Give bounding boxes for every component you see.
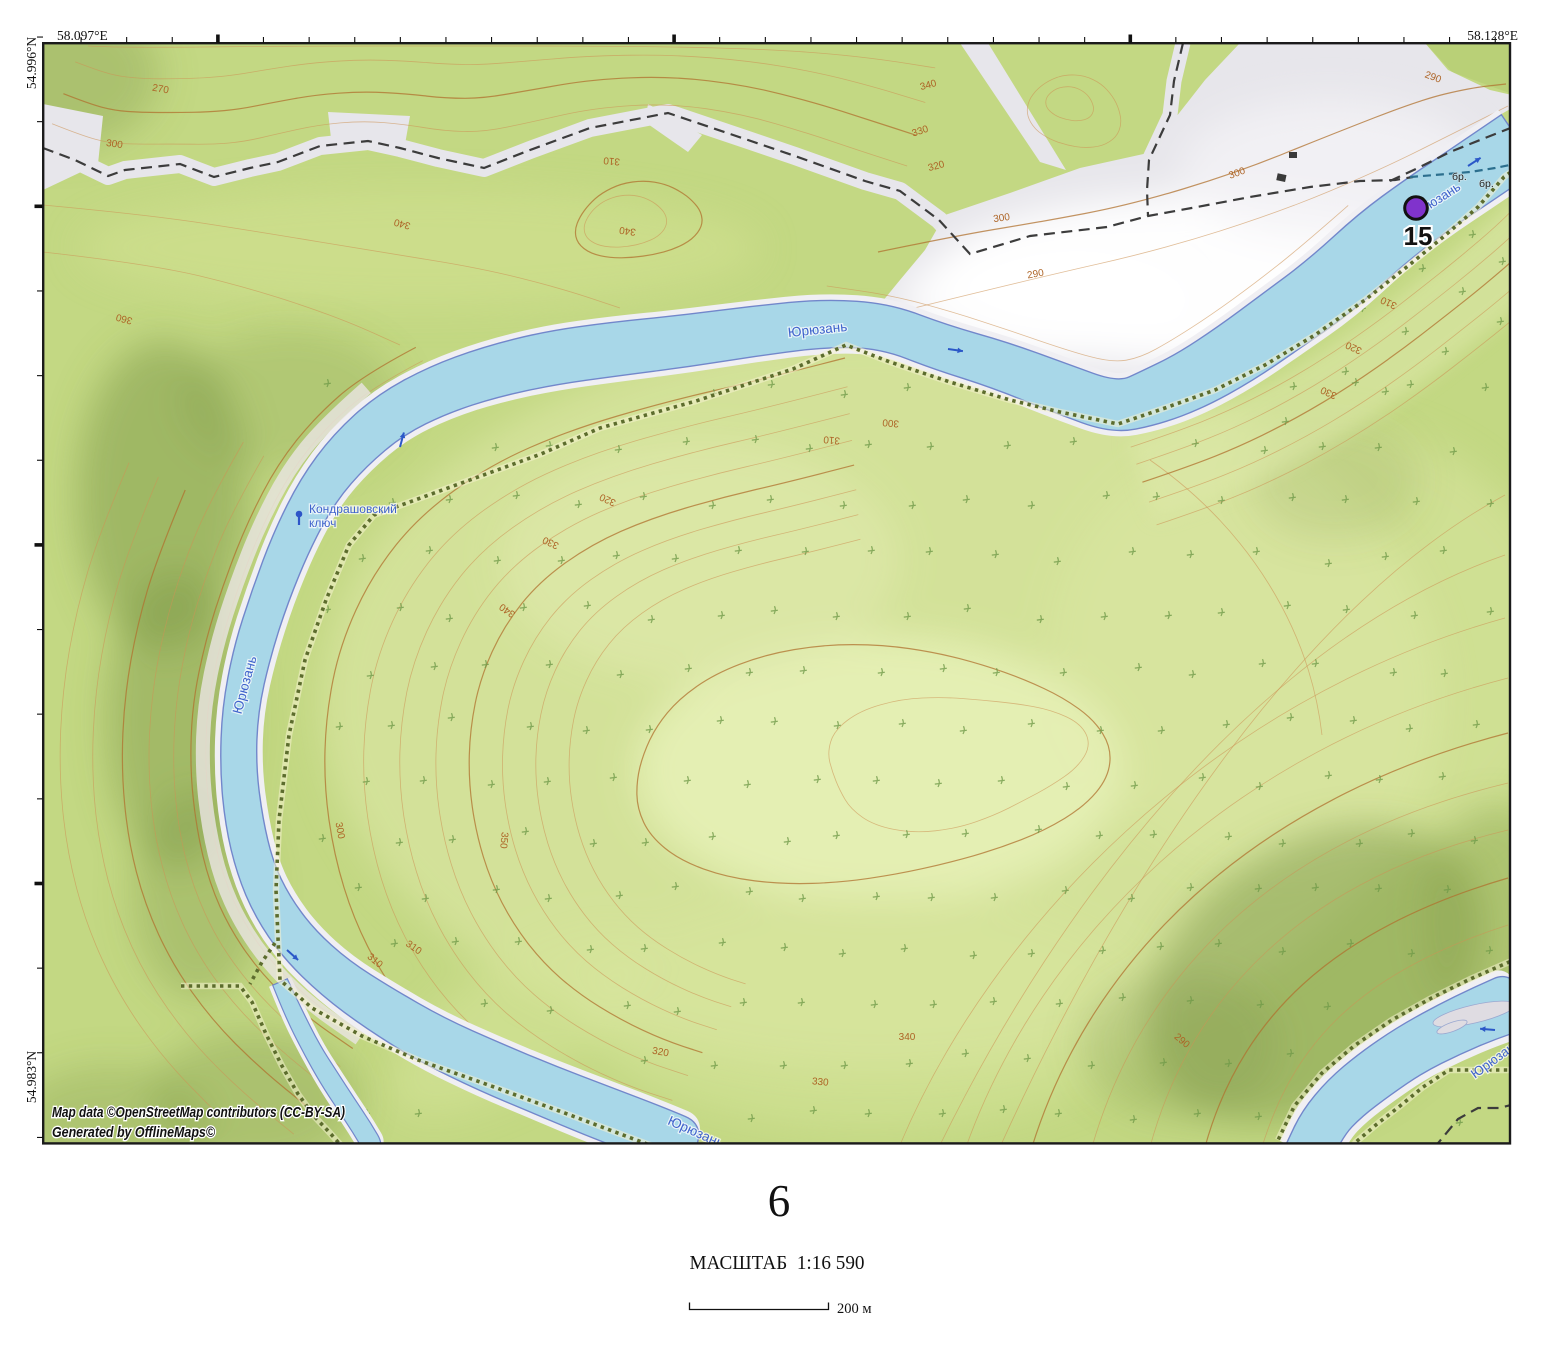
svg-text:15: 15 [1404, 221, 1433, 251]
svg-text:МАСШТАБ 1:16 590: МАСШТАБ 1:16 590 [690, 1252, 865, 1274]
svg-text:бр.: бр. [1479, 178, 1494, 190]
svg-text:58.128°E: 58.128°E [1467, 28, 1518, 43]
svg-text:310: 310 [603, 154, 621, 166]
svg-text:6: 6 [768, 1176, 791, 1226]
svg-text:54.983°N: 54.983°N [24, 1051, 39, 1104]
svg-text:310: 310 [823, 433, 841, 445]
svg-text:Кондрашовский: Кондрашовский [309, 502, 397, 516]
svg-text:54.996°N: 54.996°N [24, 37, 39, 90]
svg-text:200 м: 200 м [837, 1301, 872, 1317]
svg-text:Map data ©OpenStreetMap contri: Map data ©OpenStreetMap contributors (CC… [52, 1104, 345, 1121]
svg-text:300: 300 [882, 416, 900, 428]
svg-text:ключ: ключ [309, 516, 336, 530]
svg-text:340: 340 [899, 1032, 916, 1043]
svg-text:330: 330 [811, 1076, 829, 1088]
svg-text:350: 350 [497, 831, 509, 849]
svg-text:бр.: бр. [1452, 171, 1467, 183]
svg-text:58.097°E: 58.097°E [57, 28, 108, 43]
svg-text:Generated by OfflineMaps©: Generated by OfflineMaps© [52, 1124, 216, 1141]
